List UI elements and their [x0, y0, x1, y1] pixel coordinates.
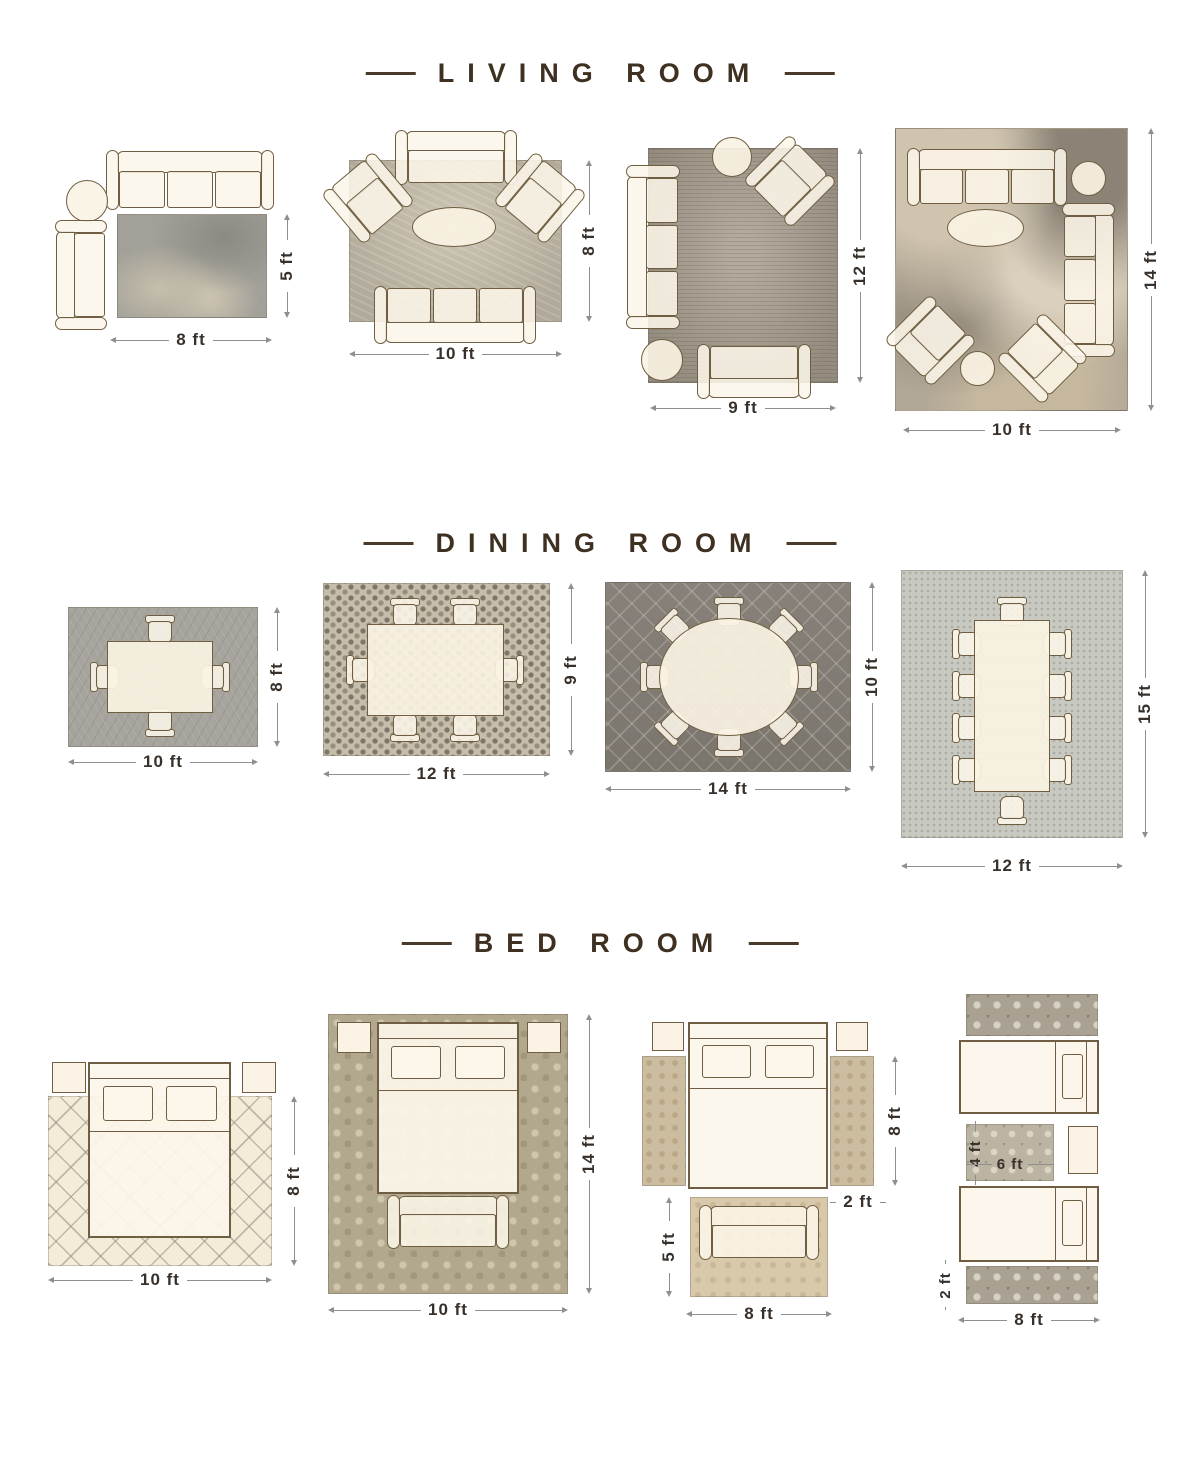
- dim-arrow: [544, 771, 550, 777]
- coffee-table: [412, 207, 496, 247]
- dim-line: [213, 340, 266, 341]
- rug-width-dimension: 10 ft: [68, 752, 258, 772]
- bed: [88, 1062, 231, 1238]
- bed-sheet-line: [690, 1088, 826, 1089]
- dim-label: 2 ft: [937, 1272, 954, 1299]
- rug-height-dimension: 5 ft: [276, 214, 298, 318]
- dining-chair: [450, 712, 480, 742]
- dim-line: [611, 789, 701, 790]
- bed-headboard: [1086, 1042, 1087, 1112]
- rug-height-dimension: 12 ft: [849, 148, 871, 383]
- coffee-table: [947, 209, 1024, 247]
- title-dash-right: [784, 72, 834, 75]
- runner-rug: [966, 994, 1098, 1036]
- dim-line: [589, 1180, 590, 1288]
- dim-line: [765, 408, 830, 409]
- dim-arrow: [562, 1307, 568, 1313]
- title-dash-left: [364, 542, 414, 545]
- dim-line: [277, 613, 278, 651]
- sofa-cushions: [408, 150, 504, 183]
- dim-label: 10 ft: [140, 1270, 180, 1290]
- dim-line: [907, 866, 985, 867]
- dim-line: [355, 354, 429, 355]
- rug-height-dimension: 8 ft: [578, 160, 600, 322]
- dim-line: [74, 762, 136, 763]
- dim-arrow: [266, 1277, 272, 1283]
- sofa-back: [117, 151, 263, 173]
- side-table: [960, 351, 995, 386]
- sofa-arm: [626, 316, 680, 329]
- dim-line: [54, 1280, 133, 1281]
- dim-line: [966, 1164, 992, 1165]
- sofa-back: [710, 1206, 808, 1226]
- sofa-back: [1095, 214, 1114, 346]
- dim-line: [589, 1020, 590, 1128]
- bed-headboard: [1086, 1188, 1087, 1260]
- dim-line: [1039, 866, 1117, 867]
- loveseat: [699, 345, 809, 398]
- rug-width-dimension: 12 ft: [901, 856, 1123, 876]
- dim-arrow: [830, 405, 836, 411]
- dim-label: 8 ft: [579, 226, 599, 256]
- dim-line: [880, 1202, 886, 1203]
- rug-width-dimension: 10 ft: [349, 344, 562, 364]
- dining-table: [367, 624, 504, 716]
- loveseat: [56, 222, 106, 328]
- sofa-cushions: [1064, 216, 1096, 344]
- rug-height-dimension: 10 ft: [861, 582, 883, 772]
- dim-label: 8 ft: [1014, 1310, 1044, 1330]
- sofa-arm: [1054, 148, 1067, 206]
- dim-line: [589, 267, 590, 316]
- runner-height-dimension: 2 ft: [934, 1260, 956, 1310]
- rug-width-dimension: 12 ft: [323, 764, 550, 784]
- dim-arrow: [568, 750, 574, 756]
- bed-pillows: [702, 1045, 814, 1078]
- section-title-living-room: LIVING ROOM: [366, 58, 835, 89]
- section-title-dining-room: DINING ROOM: [364, 528, 837, 559]
- dim-label: 10 ft: [143, 752, 183, 772]
- sofa-arm: [496, 1195, 509, 1249]
- sofa: [627, 167, 679, 327]
- dim-label: 10 ft: [436, 344, 476, 364]
- dim-arrow: [284, 312, 290, 318]
- sofa-cushions: [646, 178, 678, 316]
- dim-label: 14 ft: [579, 1134, 599, 1174]
- sofa-arm: [523, 286, 536, 344]
- dim-line: [1151, 296, 1152, 406]
- dim-label: 8 ft: [744, 1304, 774, 1324]
- bed-headboard: [379, 1024, 517, 1039]
- runner-height-dimension: 8 ft: [884, 1056, 906, 1186]
- runner-width-dimension: 8 ft: [958, 1310, 1100, 1330]
- nightstand: [527, 1022, 561, 1053]
- dim-arrow: [869, 766, 875, 772]
- sofa-arm: [395, 130, 408, 185]
- title-dash-left: [366, 72, 416, 75]
- sofa-cushions: [74, 233, 105, 317]
- runner-width-dimension: 2 ft: [830, 1192, 886, 1212]
- dim-line: [656, 408, 721, 409]
- dim-line: [895, 1062, 896, 1095]
- twin-bed: [959, 1040, 1099, 1114]
- dining-table: [974, 620, 1050, 792]
- sofa: [1063, 205, 1114, 355]
- dim-label: 14 ft: [708, 779, 748, 799]
- rug-height-dimension: 14 ft: [1140, 128, 1162, 411]
- dim-line: [964, 1320, 1007, 1321]
- side-table: [1071, 161, 1106, 196]
- sofa-arm: [55, 220, 107, 233]
- dim-label: 8 ft: [885, 1106, 905, 1136]
- sofa-back: [627, 176, 647, 318]
- bench: [701, 1206, 817, 1259]
- rug-height-dimension: 9 ft: [560, 583, 582, 756]
- rug-width-dimension: 9 ft: [650, 398, 836, 418]
- dim-line: [975, 1175, 976, 1186]
- dim-line: [116, 340, 169, 341]
- dim-arrow: [266, 337, 272, 343]
- sofa-arm: [55, 317, 107, 330]
- dim-label: 2 ft: [843, 1192, 873, 1212]
- dim-arrow: [556, 351, 562, 357]
- dim-line: [669, 1203, 670, 1221]
- sofa-back: [398, 1196, 498, 1216]
- sofa-arm: [907, 148, 920, 206]
- runner-rug: [966, 1266, 1098, 1304]
- dim-line: [475, 1310, 562, 1311]
- dim-line: [287, 220, 288, 240]
- sofa-arm: [261, 150, 274, 210]
- runner-rug: [642, 1056, 686, 1186]
- sofa-cushions: [710, 346, 798, 379]
- dim-line: [334, 1310, 421, 1311]
- dim-arrow: [274, 741, 280, 747]
- dim-line: [294, 1102, 295, 1155]
- dining-table: [659, 618, 799, 736]
- sofa-back: [406, 131, 506, 151]
- nightstand: [242, 1062, 276, 1093]
- dim-arrow: [1094, 1317, 1100, 1323]
- side-table: [712, 137, 752, 177]
- dim-label: 10 ft: [862, 657, 882, 697]
- title-dash-left: [402, 942, 452, 945]
- dim-arrow: [826, 1311, 832, 1317]
- dim-line: [1145, 730, 1146, 832]
- dim-line: [187, 1280, 266, 1281]
- sofa-cushions: [712, 1225, 806, 1258]
- dim-line: [755, 789, 845, 790]
- dim-line: [1051, 1320, 1094, 1321]
- sofa-arm: [806, 1205, 819, 1260]
- runner-rug: [830, 1056, 874, 1186]
- dim-line: [329, 774, 410, 775]
- dim-line: [830, 1202, 836, 1203]
- dim-label: 9 ft: [561, 655, 581, 685]
- dim-label: 8 ft: [284, 1166, 304, 1196]
- rug-width-dimension: 10 ft: [48, 1270, 272, 1290]
- sofa-back: [918, 149, 1056, 170]
- rug-height-dimension: 8 ft: [266, 607, 288, 747]
- sofa-arm: [374, 286, 387, 344]
- foot-rug-width-dimension: 8 ft: [686, 1304, 832, 1324]
- dim-line: [1151, 134, 1152, 244]
- bed-pillows: [103, 1086, 217, 1120]
- dim-label: 10 ft: [428, 1300, 468, 1320]
- dim-label: 10 ft: [992, 420, 1032, 440]
- sofa-cushions: [400, 1214, 496, 1247]
- dining-chair: [997, 795, 1027, 825]
- dim-line: [277, 703, 278, 741]
- loveseat: [397, 131, 515, 184]
- accent-rug-width-dimension: 6 ft: [966, 1156, 1054, 1173]
- rug-width-dimension: 8 ft: [110, 330, 272, 350]
- bed-pillows: [391, 1046, 504, 1080]
- dim-arrow: [892, 1180, 898, 1186]
- dim-arrow: [666, 1291, 672, 1297]
- sofa-cushions: [119, 171, 261, 208]
- sofa-back: [708, 378, 800, 398]
- rug-height-dimension: 14 ft: [578, 1014, 600, 1294]
- nightstand: [52, 1062, 86, 1093]
- sofa-arm: [626, 165, 680, 178]
- dim-line: [895, 1147, 896, 1180]
- dim-arrow: [586, 316, 592, 322]
- dim-label: 8 ft: [267, 662, 287, 692]
- nightstand: [1068, 1126, 1098, 1174]
- dim-line: [872, 588, 873, 651]
- section-title-text: BED ROOM: [474, 928, 727, 959]
- twin-bed: [959, 1186, 1099, 1262]
- dim-arrow: [586, 1288, 592, 1294]
- dim-label: 14 ft: [1141, 250, 1161, 290]
- dim-line: [692, 1314, 737, 1315]
- rug-width-dimension: 10 ft: [328, 1300, 568, 1320]
- dim-label: 12 ft: [417, 764, 457, 784]
- sofa-arm: [699, 1205, 712, 1260]
- dim-line: [287, 292, 288, 312]
- dim-label: 9 ft: [728, 398, 758, 418]
- rug-width-dimension: 14 ft: [605, 779, 851, 799]
- dim-line: [860, 154, 861, 240]
- sofa-cushions: [387, 288, 523, 323]
- side-table: [66, 180, 108, 222]
- dim-arrow: [1117, 863, 1123, 869]
- dim-arrow: [845, 786, 851, 792]
- rug-height-dimension: 15 ft: [1134, 570, 1156, 838]
- sofa-cushions: [920, 169, 1054, 204]
- foot-rug-height-dimension: 5 ft: [658, 1197, 680, 1297]
- bed: [377, 1022, 519, 1194]
- bed-sheet-line: [90, 1131, 229, 1132]
- accent-rug-height-dimension: 4 ft: [964, 1121, 986, 1185]
- sofa-arm: [697, 344, 710, 399]
- bed-sheet-line: [379, 1090, 517, 1091]
- rug-height-dimension: 8 ft: [283, 1096, 305, 1266]
- dim-arrow: [1115, 427, 1121, 433]
- title-dash-right: [787, 542, 837, 545]
- dim-label: 12 ft: [992, 856, 1032, 876]
- dim-line: [975, 1121, 976, 1132]
- side-table: [641, 339, 683, 381]
- dim-line: [190, 762, 252, 763]
- dim-line: [294, 1207, 295, 1260]
- nightstand: [836, 1022, 868, 1051]
- title-dash-right: [748, 942, 798, 945]
- dim-line: [463, 774, 544, 775]
- dim-arrow: [252, 759, 258, 765]
- sofa-back: [56, 231, 75, 319]
- section-title-bed-room: BED ROOM: [402, 928, 799, 959]
- sofa-arm: [1062, 203, 1115, 216]
- section-title-text: LIVING ROOM: [438, 58, 763, 89]
- bed-pillow: [1062, 1200, 1084, 1246]
- rug-size-guide: LIVING ROOM 5 ft 8 ft: [0, 0, 1200, 1467]
- dim-line: [1039, 430, 1115, 431]
- sofa: [376, 287, 534, 343]
- bed-headboard: [90, 1064, 229, 1079]
- dim-label: 15 ft: [1135, 684, 1155, 724]
- dim-line: [860, 292, 861, 378]
- dim-line: [482, 354, 556, 355]
- dim-line: [945, 1260, 946, 1264]
- dim-label: 5 ft: [659, 1232, 679, 1262]
- bed-sheet-line: [1055, 1188, 1056, 1260]
- dim-line: [781, 1314, 826, 1315]
- section-title-text: DINING ROOM: [436, 528, 765, 559]
- bench: [389, 1196, 507, 1248]
- dim-line: [1028, 1164, 1054, 1165]
- dim-line: [571, 589, 572, 644]
- dim-line: [589, 166, 590, 215]
- dining-chair: [390, 712, 420, 742]
- rug: [117, 214, 267, 318]
- bed: [688, 1022, 828, 1189]
- dim-line: [909, 430, 985, 431]
- sofa: [108, 151, 272, 209]
- bed-pillow: [1062, 1054, 1084, 1099]
- dim-label: 6 ft: [997, 1156, 1024, 1173]
- dim-line: [669, 1273, 670, 1291]
- rug-width-dimension: 10 ft: [903, 420, 1121, 440]
- dim-label: 8 ft: [176, 330, 206, 350]
- nightstand: [652, 1022, 684, 1051]
- dim-line: [1145, 576, 1146, 678]
- dim-arrow: [857, 377, 863, 383]
- dim-arrow: [1142, 832, 1148, 838]
- bed-headboard: [690, 1024, 826, 1039]
- sofa-back: [385, 322, 525, 343]
- sofa-arm: [387, 1195, 400, 1249]
- bed-sheet-line: [1055, 1042, 1056, 1112]
- sofa: [909, 149, 1065, 205]
- dim-label: 5 ft: [277, 251, 297, 281]
- dining-table: [107, 641, 213, 713]
- dim-arrow: [291, 1260, 297, 1266]
- dim-line: [872, 703, 873, 766]
- dim-line: [945, 1307, 946, 1311]
- dim-line: [571, 696, 572, 751]
- dim-arrow: [1148, 405, 1154, 411]
- sofa-arm: [798, 344, 811, 399]
- nightstand: [337, 1022, 371, 1053]
- dim-label: 12 ft: [850, 246, 870, 286]
